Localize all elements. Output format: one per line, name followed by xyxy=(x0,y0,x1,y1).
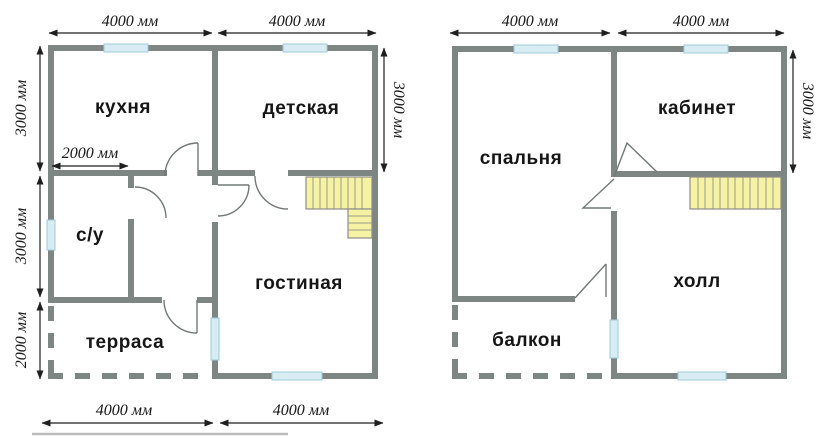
window xyxy=(678,372,726,380)
door-arc xyxy=(135,187,166,218)
room-label-balcony: балкон xyxy=(492,330,562,351)
wall-segment xyxy=(54,170,167,176)
dimension-label: 4000 мм xyxy=(273,402,329,419)
door-arc xyxy=(164,300,197,333)
window xyxy=(514,45,558,53)
staircase xyxy=(306,177,372,238)
dimension-label: 3000 мм xyxy=(13,80,30,137)
wall-segment xyxy=(212,51,218,185)
wall-segment xyxy=(54,297,162,303)
dimension-label: 4000 мм xyxy=(96,402,152,419)
door-arc xyxy=(165,143,198,176)
window xyxy=(104,44,148,52)
dimension-label: 3000 мм xyxy=(390,81,407,138)
room-label-terrace: терраса xyxy=(86,332,165,353)
wall-segment xyxy=(48,45,54,303)
door-arc xyxy=(255,176,288,209)
window xyxy=(610,320,618,358)
wall-segment xyxy=(288,170,372,176)
dimension-label: 2000 мм xyxy=(13,312,30,368)
window xyxy=(47,220,55,250)
wall-segment xyxy=(611,52,617,177)
dimension-label: 2000 мм xyxy=(62,145,118,162)
dimension-label: 4000 мм xyxy=(102,13,158,30)
room-label-study: кабинет xyxy=(658,98,736,119)
room-label-bedroom: спальня xyxy=(480,148,562,169)
dimension-label: 4000 мм xyxy=(269,13,325,30)
door-arc xyxy=(218,185,249,216)
wall-segment xyxy=(48,45,378,51)
window xyxy=(272,372,322,380)
first-floor-plan: кухня детская с/у гостиная терраса 4000 … xyxy=(13,13,407,423)
room-label-living-room: гостиная xyxy=(255,273,343,294)
wall-segment xyxy=(128,219,134,297)
room-label-kitchen: кухня xyxy=(95,97,151,118)
wall-segment xyxy=(458,296,575,302)
wall-segment xyxy=(781,46,787,379)
window xyxy=(283,44,327,52)
wall-segment xyxy=(128,176,134,188)
dimension-label: 3000 мм xyxy=(13,208,30,265)
room-label-hall: холл xyxy=(673,271,720,292)
room-label-nursery: детская xyxy=(263,98,340,119)
floor-plans-image: кухня детская с/у гостиная терраса 4000 … xyxy=(0,0,830,436)
staircase xyxy=(690,177,781,209)
wall-segment xyxy=(372,45,378,379)
wall-segment xyxy=(197,297,212,303)
window xyxy=(211,318,219,360)
dimension-label: 4000 мм xyxy=(502,13,558,30)
wall-segment xyxy=(452,46,787,52)
room-label-bathroom: с/у xyxy=(76,225,104,246)
wall-segment xyxy=(452,46,458,302)
second-floor-plan: спальня кабинет холл балкон 4000 мм 4000… xyxy=(450,13,816,380)
dimension-label: 3000 мм xyxy=(799,82,816,139)
door-leaf xyxy=(575,264,606,298)
dimension-label: 4000 мм xyxy=(673,13,729,30)
wall-segment xyxy=(198,170,255,176)
wall-segment xyxy=(617,171,781,177)
window xyxy=(684,45,728,53)
door-leaf xyxy=(583,179,614,208)
